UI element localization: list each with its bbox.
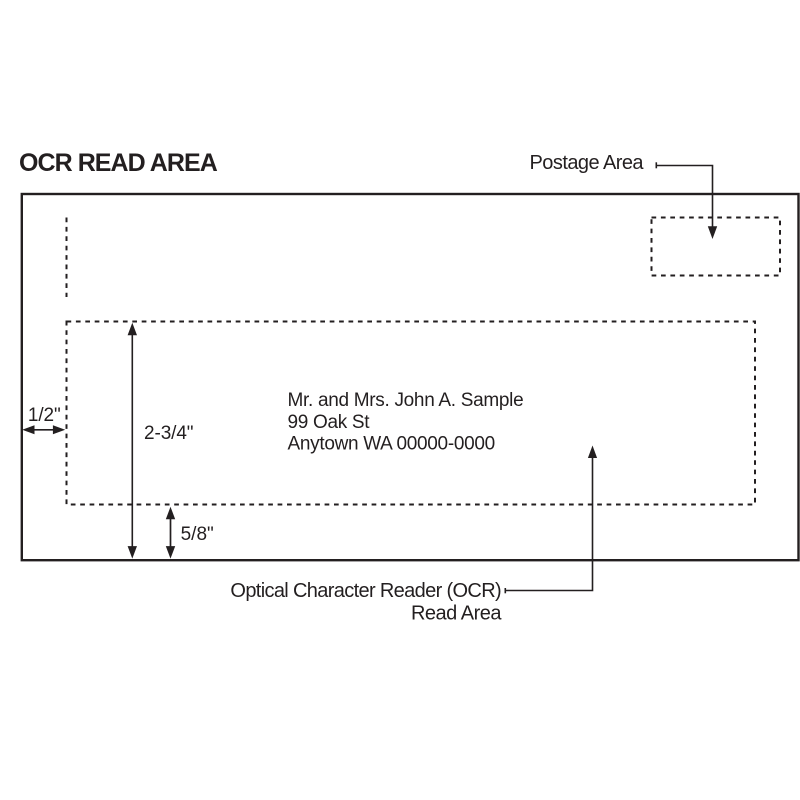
svg-text:OCR READ AREA: OCR READ AREA	[19, 149, 218, 177]
svg-text:99 Oak St: 99 Oak St	[288, 412, 371, 433]
svg-text:Mr. and Mrs. John A. Sample: Mr. and Mrs. John A. Sample	[288, 390, 524, 411]
svg-text:1/2": 1/2"	[28, 405, 61, 426]
svg-text:Postage Area: Postage Area	[530, 152, 645, 174]
svg-text:Optical Character Reader (OCR): Optical Character Reader (OCR)	[230, 580, 501, 602]
svg-text:Read Area: Read Area	[411, 603, 502, 625]
svg-text:Anytown WA 00000-0000: Anytown WA 00000-0000	[288, 434, 495, 455]
svg-text:2-3/4": 2-3/4"	[144, 423, 193, 444]
svg-text:5/8": 5/8"	[181, 524, 214, 545]
